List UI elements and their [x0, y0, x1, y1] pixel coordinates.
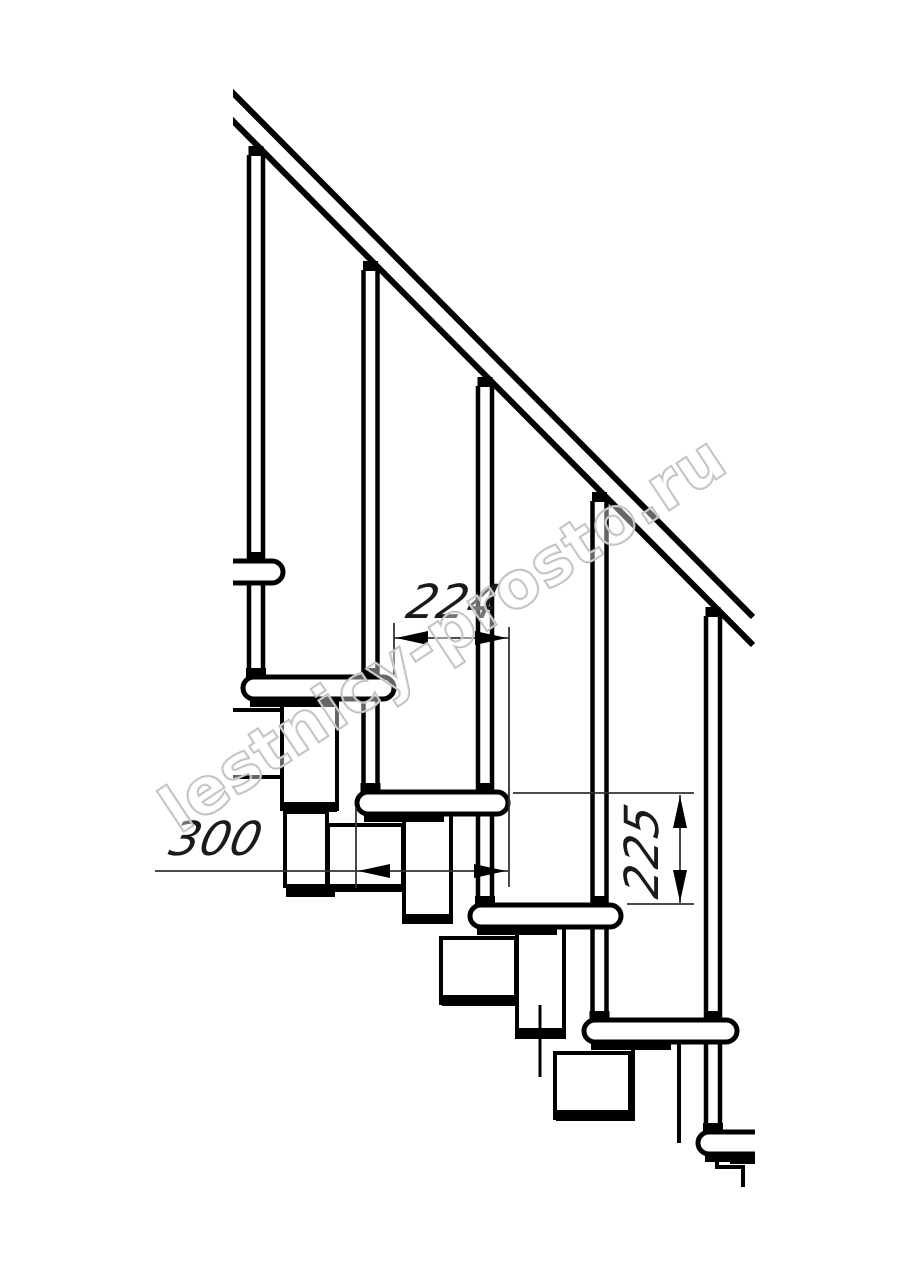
- dimension-rise-225: 225: [513, 793, 694, 904]
- watermark-text: lestnicy-prosto.ru: [147, 421, 739, 848]
- module-box: [555, 1053, 630, 1118]
- arrowhead-up-icon: [673, 796, 687, 828]
- tread: [470, 905, 621, 927]
- baluster: [703, 607, 723, 1132]
- tread: [132, 561, 283, 583]
- dimension-label-rise: 225: [616, 800, 670, 903]
- module-box: [328, 825, 403, 890]
- staircase-drawing-page: 224 300 225 lestnicy-prosto.ru: [0, 0, 914, 1280]
- arrowhead-down-icon: [673, 870, 687, 902]
- tread: [698, 1132, 849, 1154]
- baluster: [246, 146, 266, 677]
- bottom-step-line: [717, 1162, 743, 1187]
- module-column-lower: [285, 812, 327, 886]
- staircase-side-elevation-drawing: 224 300 225 lestnicy-prosto.ru: [0, 0, 914, 1280]
- module-box: [441, 938, 516, 1003]
- module-column: [404, 814, 451, 922]
- tread: [357, 792, 508, 814]
- tread: [584, 1020, 737, 1042]
